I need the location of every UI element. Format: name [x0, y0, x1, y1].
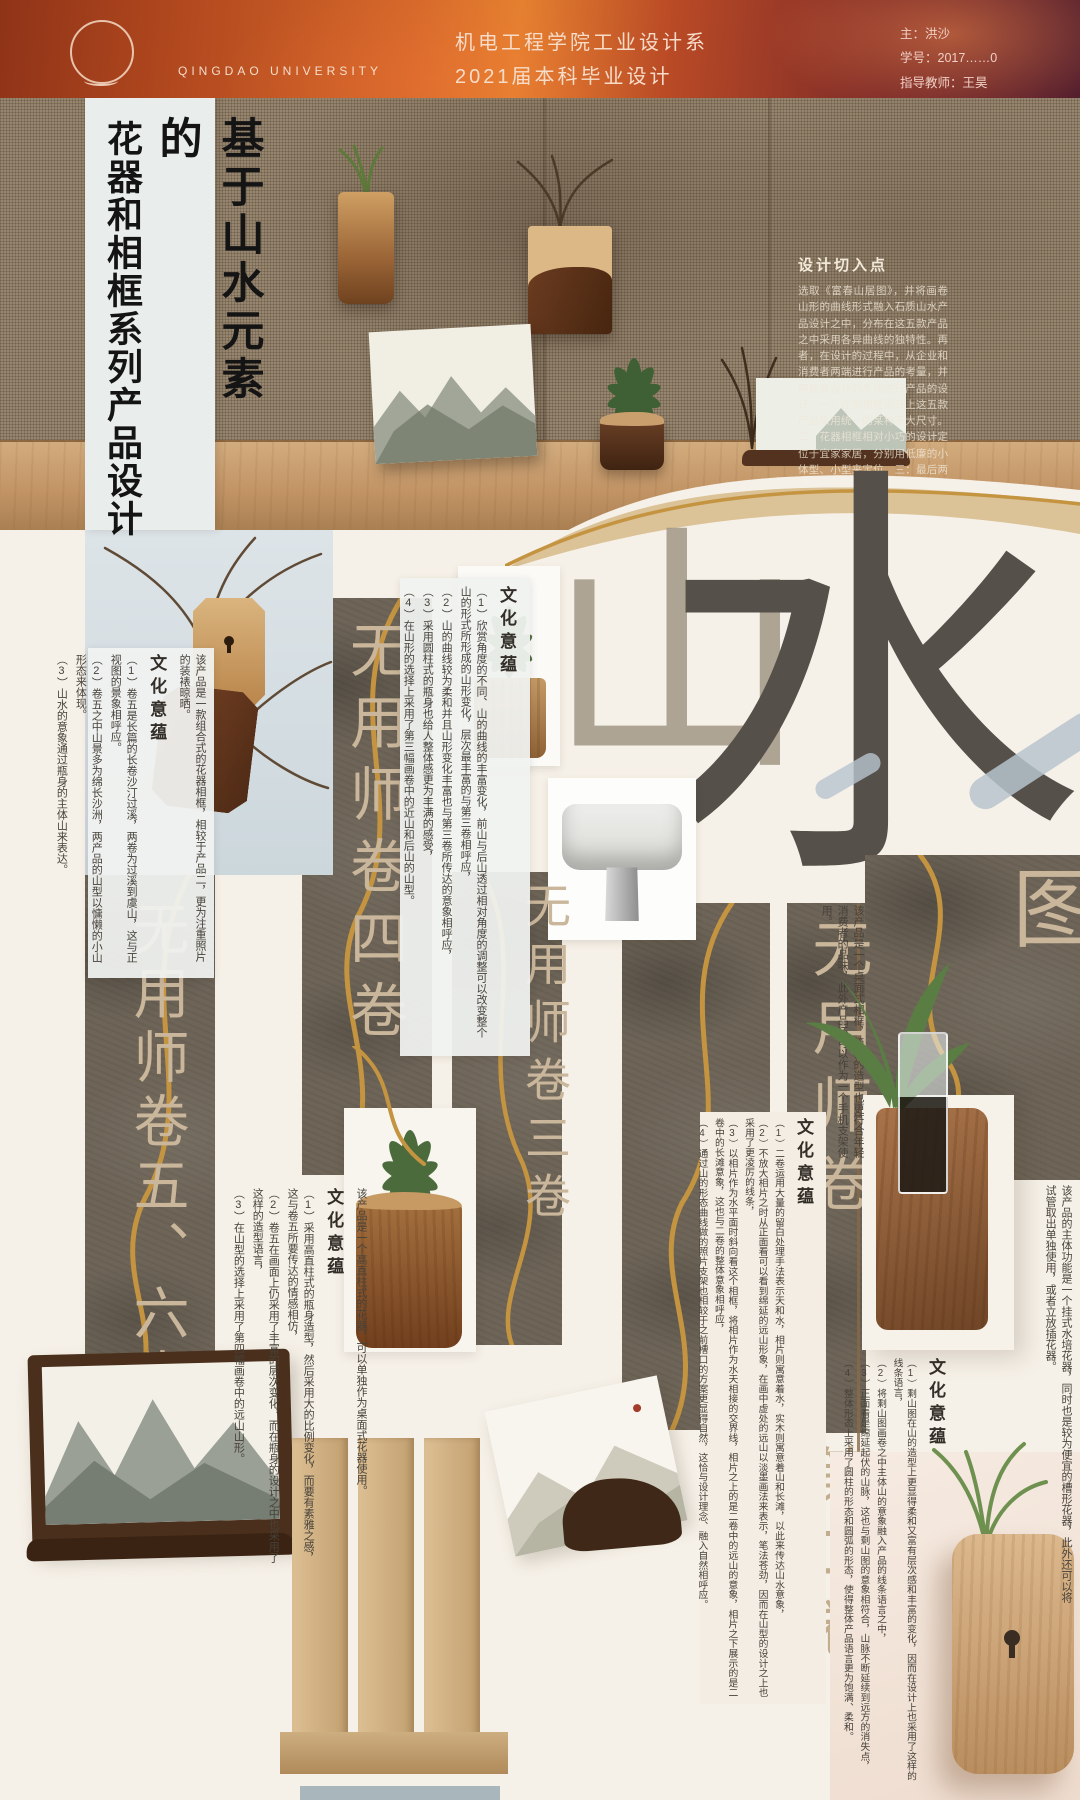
- culture-point: （1）卷五是长篇的长卷沙汀过溪，两卷为过溪到虞山，这与正视图的景象相呼应。: [106, 654, 138, 972]
- culture-block-2: 文化意蕴 （1）欣赏角度的不同、山的曲线的丰富变化，前山与后山透过相对角度的调整…: [400, 578, 530, 1056]
- poster-title-line1: 基于山水元素的: [146, 116, 270, 446]
- university-logo: [70, 20, 134, 84]
- dry-twigs: [500, 150, 630, 230]
- department-title: 机电工程学院工业设计系 2021届本科毕业设计: [455, 26, 708, 94]
- header-banner: QINGDAO UNIVERSITY 机电工程学院工业设计系 2021届本科毕业…: [0, 0, 1080, 98]
- culture-point: （1）二卷运用大量的留白处理手法表示天和水，相片则寓意着水，实木则寓意着山和长滩…: [771, 1118, 785, 1698]
- culture-point: （1）采用高直柱式的瓶身造型，然后采用大的比例变化，而要有素雅之感，这与卷五所要…: [283, 1188, 315, 1570]
- culture-point: （4）通过山的形态曲线做的照片支架也相较于之前槽口的方案更显得自然，这恰与设计理…: [695, 1118, 709, 1698]
- advisor-line: 指导教师：王昊: [900, 71, 997, 95]
- metal-stand: [605, 867, 639, 921]
- table-edge-strip: [300, 1786, 500, 1800]
- culture-title: 文化意蕴: [791, 1118, 816, 1698]
- culture-point: （1）欣赏角度的不同、山的曲线的丰富变化，前山与后山透过相对角度的调整可以改变整…: [456, 586, 488, 1048]
- culture-title: 文化意蕴: [321, 1188, 346, 1570]
- culture-title: 文化意蕴: [144, 654, 169, 972]
- culture-point: （3）以相片作为水平面时斜向看这个相框，将相片作为水天相接的交界线，相片之上的是…: [711, 1118, 738, 1698]
- culture-title: 文化意蕴: [494, 586, 519, 1048]
- culture-point: （4）在山形的选择上采用了第三幅画卷中的近山和后山的山型。: [399, 586, 415, 1048]
- pot-rim: [600, 412, 664, 426]
- bamboo-leaves: [795, 938, 975, 1113]
- frame-body: [562, 804, 682, 870]
- graduation-design-poster: QINGDAO UNIVERSITY 机电工程学院工业设计系 2021届本科毕业…: [0, 0, 1080, 1800]
- gold-ridge-line: [344, 1046, 476, 1166]
- product-intro: 该产品的主体功能是一个挂式水培花器，同时也是较为便宜的槽形花器，此外还可以将试管…: [1041, 1185, 1073, 1605]
- culture-point: （3）正面看是绵延起伏的山脉，这也与剩山图的意象相符合，山脉不断延续到远方的消失…: [857, 1358, 871, 1783]
- wood-round-vase: [356, 1200, 462, 1348]
- culture-point: （2）山的曲线较为柔和并且山形变化丰富也与第三卷所传达的意象相呼应，: [437, 586, 453, 1048]
- department-line: 机电工程学院工业设计系: [455, 26, 708, 60]
- culture-block-5: 该产品是一个高直柱式的花器，可以单独作为桌面式花器使用。 文化意蕴 （1）采用高…: [243, 1188, 371, 1570]
- glass-test-tube: [898, 1032, 948, 1194]
- culture-block-4: 文化意蕴 （1）二卷运用大量的留白处理手法表示天和水，相片则寓意着水，实木则寓意…: [700, 1112, 826, 1704]
- culture-point: （3）在山型的选择上采用了第四幅画卷中的远山山形。: [229, 1188, 245, 1570]
- product-intro-block-6: 该产品的主体功能是一个挂式水培花器，同时也是较为便宜的槽形花器，此外还可以将试管…: [1014, 1185, 1076, 1605]
- culture-point: （1）剩山图在山的造型上更显得柔和又富有层次感和丰富的变化，因而在设计上也采用了…: [890, 1358, 917, 1783]
- culture-title: 文化意蕴: [923, 1358, 948, 1783]
- university-name: QINGDAO UNIVERSITY: [178, 64, 382, 78]
- keyhole-slot: [1004, 1630, 1020, 1646]
- student-info: 主：洪沙 学号：2017……0 指导教师：王昊: [900, 22, 997, 95]
- culture-point: （2）卷五之中山景多为绵长沙洲，两产品的山型以慵懒的小山形态来体现。: [71, 654, 103, 972]
- student-id-line: 学号：2017……0: [900, 46, 997, 70]
- culture-point: （4）整体形态上采用了圆柱的形态和圆弧的形态，使得整体产品语言更为饱满、柔和。: [840, 1358, 854, 1783]
- product-intro: 该产品是一个高直柱式的花器，可以单独作为桌面式花器使用。: [352, 1188, 368, 1570]
- keyhole-slot: [224, 636, 234, 646]
- hero-wall-vase-small: [338, 192, 394, 304]
- culture-point: （3）山水的意象通过瓶身的主体山来表达。: [52, 654, 68, 972]
- culture-point: （3）采用圆柱式的瓶身也给人整体感更为丰满的感受，: [418, 586, 434, 1048]
- project-line: 2021届本科毕业设计: [455, 60, 708, 94]
- wood-slat: [424, 1438, 480, 1738]
- poster-title-line2: 花器和相框系列产品设计: [96, 120, 148, 540]
- culture-point: （2）将剩山图画卷之中主体山的意象融入产品的线条语言之中，: [873, 1358, 887, 1783]
- culture-point: （2）不放大相片之时从正面看可以看到绵延的远山形象，在画中虚处的远山以淡墨画法来…: [741, 1118, 768, 1698]
- product-intro: 该产品是一款组合式的花器相框，相较于产品二，更为注重照片的装裱晾晒。: [175, 654, 207, 972]
- stand-foot: [280, 1732, 508, 1774]
- culture-point: （2）卷五在画面上仍采用了丰富的层次变化，而在瓶身的设计之中也采用了这样的造型语…: [248, 1188, 280, 1570]
- culture-block-6: 文化意蕴 （1）剩山图在山的造型上更显得柔和又富有层次感和丰富的变化，因而在设计…: [850, 1358, 954, 1783]
- design-entry-title: 设计切入点: [798, 254, 948, 275]
- walnut-lower-half: [528, 267, 612, 334]
- culture-block-1: 该产品是一款组合式的花器相框，相较于产品二，更为注重照片的装裱晾晒。 文化意蕴 …: [88, 648, 214, 978]
- big-char-shui: 水: [655, 468, 1080, 898]
- author-line: 主：洪沙: [900, 22, 997, 46]
- hero-wall-vase-walnut: [528, 226, 612, 334]
